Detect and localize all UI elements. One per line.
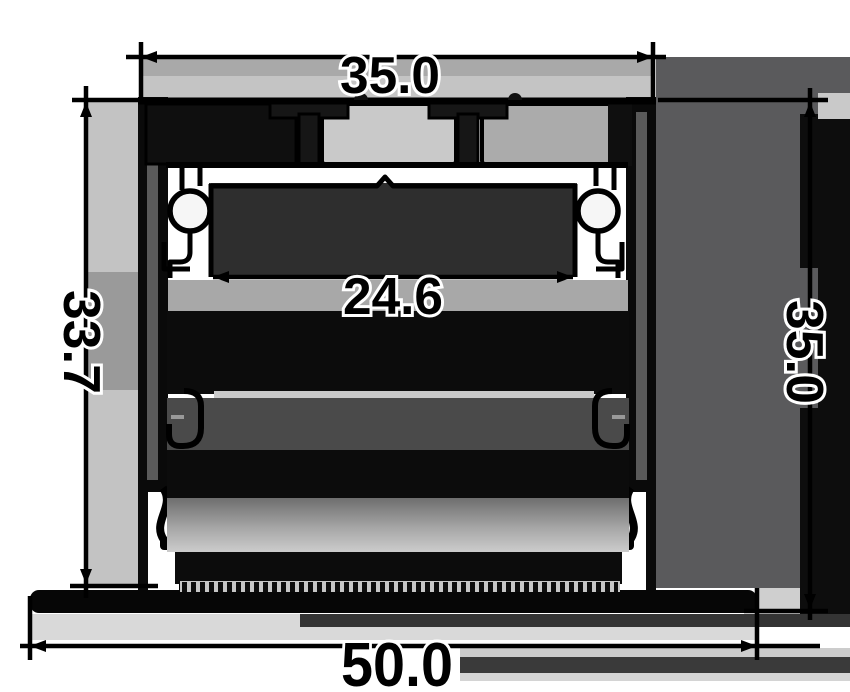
lower-black-band bbox=[167, 450, 629, 498]
bottom-dark-band bbox=[300, 614, 850, 627]
dim-bottom-arrow-left bbox=[30, 640, 46, 652]
lower-gradient-band bbox=[167, 498, 629, 552]
t-divider-2-stem bbox=[458, 114, 478, 166]
profile-section bbox=[30, 93, 757, 613]
screw-boss-left bbox=[170, 191, 210, 231]
dim-top-label: 35.0 bbox=[340, 47, 440, 105]
profile-drawing: 35.0 24.6 33.7 35.0 50.0 bbox=[0, 0, 850, 692]
dim-bottom-label: 50.0 bbox=[341, 631, 453, 692]
drawing-canvas: 35.0 24.6 33.7 35.0 50.0 bbox=[0, 0, 850, 692]
rail-right-filler bbox=[608, 102, 632, 166]
right-boss-neck bbox=[596, 165, 614, 190]
base-black-band bbox=[175, 552, 622, 584]
mid-lower-band bbox=[167, 398, 629, 450]
shelf-highlight bbox=[214, 391, 594, 398]
bottom-right-band-3 bbox=[460, 673, 850, 681]
bottom-right-band-1 bbox=[460, 648, 850, 657]
dim-left-label: 33.7 bbox=[52, 290, 110, 394]
left-wall-core bbox=[147, 112, 158, 480]
upper-cavity-top-line bbox=[211, 177, 575, 186]
bottom-right-band-2 bbox=[460, 657, 850, 673]
left-wall-outer-lower bbox=[138, 490, 148, 596]
bottom-flange bbox=[30, 590, 757, 613]
t-divider-1-stem bbox=[299, 114, 319, 166]
right-wall-outer-lower bbox=[646, 490, 656, 596]
dim-right-label: 35.0 bbox=[775, 300, 833, 404]
upper-cavity-fill bbox=[209, 183, 577, 277]
dim-inner-label: 24.6 bbox=[343, 268, 443, 326]
left-boss-neck bbox=[182, 165, 200, 190]
screw-boss-right bbox=[578, 191, 618, 231]
right-wall-core bbox=[636, 112, 647, 480]
right-light-patch bbox=[818, 93, 850, 119]
